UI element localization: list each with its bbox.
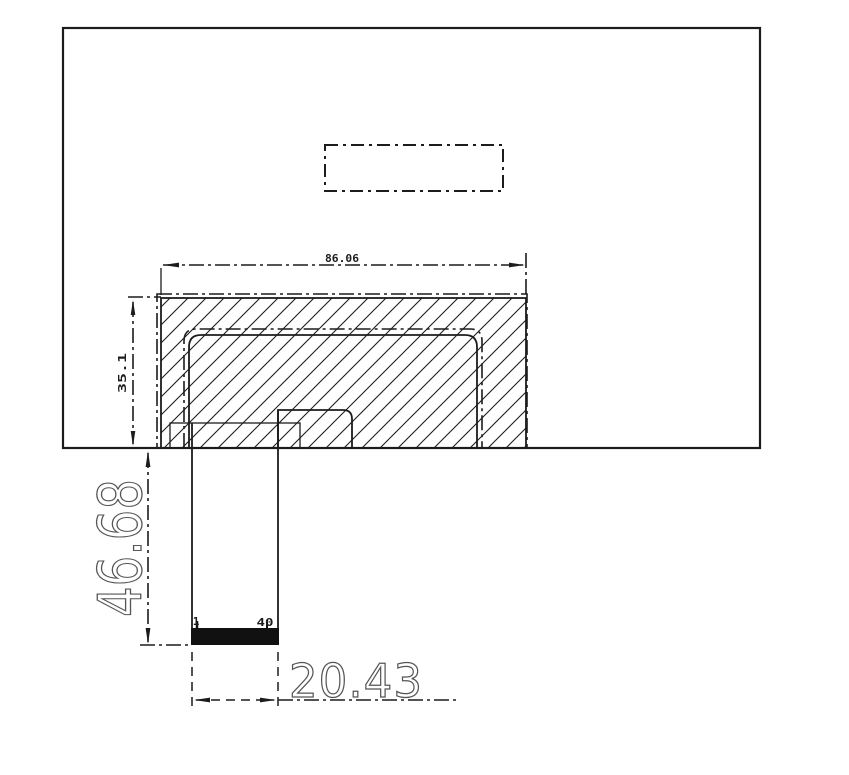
cad-drawing: 86.06 35.1 46.68 20.43 1 40 (0, 0, 849, 775)
hatched-block-fill (161, 298, 526, 448)
dim-tail-length-text: 46.68 (86, 479, 156, 617)
pin-last-label: 40 (257, 616, 274, 629)
top-window-outline (325, 145, 503, 191)
dim-tail-width-arrow-right (260, 698, 276, 703)
dim-tail-length-arrow-top (146, 451, 151, 467)
dim-height-arrow-bottom (131, 431, 136, 446)
connector-bar (191, 628, 279, 645)
dim-tail-width-text: 20.43 (289, 654, 423, 708)
dim-tail-width-arrow-left (194, 698, 210, 703)
dim-height-text: 35.1 (116, 352, 129, 393)
dim-height-arrow-top (131, 300, 136, 315)
dim-width-text: 86.06 (325, 252, 359, 265)
dim-width-arrow-left (163, 263, 179, 268)
cad-drawing-canvas: 86.06 35.1 46.68 20.43 1 40 (0, 0, 849, 775)
dim-tail-length-arrow-bottom (146, 628, 151, 644)
pin-first-label: 1 (193, 615, 200, 628)
dim-width-arrow-right (509, 263, 525, 268)
